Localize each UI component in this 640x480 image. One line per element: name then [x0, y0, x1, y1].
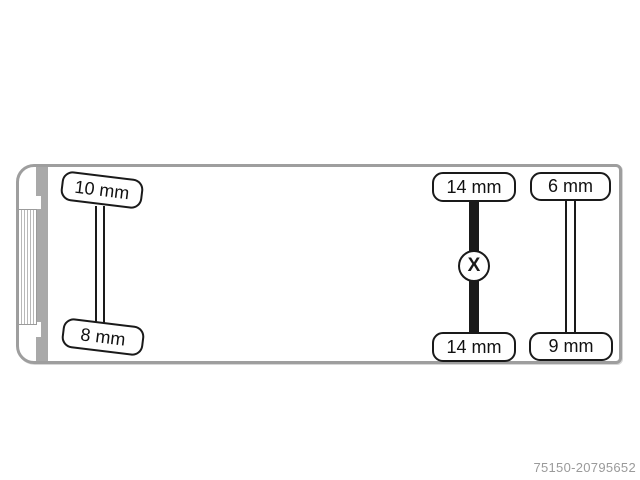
drive-axle-x-marker: X	[458, 250, 490, 282]
x-marker-label: X	[468, 255, 481, 277]
tire-drive-top: 14 mm	[432, 172, 516, 202]
front-grille	[18, 209, 37, 325]
tire-drive-bottom: 14 mm	[432, 332, 516, 362]
steer-axle-line	[95, 206, 105, 324]
rear-axle-line	[565, 200, 576, 334]
tread-depth-label: 14 mm	[446, 177, 501, 198]
tire-tread-diagram: 10 mm 8 mm X 14 mm 14 mm 6 mm 9 mm 75150…	[0, 0, 640, 480]
tread-depth-label: 9 mm	[549, 336, 594, 357]
tread-depth-label: 8 mm	[79, 324, 126, 350]
grille-notch-top	[19, 196, 41, 209]
tread-depth-label: 6 mm	[548, 176, 593, 197]
tread-depth-label: 14 mm	[446, 337, 501, 358]
tire-rear-top: 6 mm	[530, 172, 611, 201]
reference-number: 75150-20795652	[0, 460, 636, 475]
tread-depth-label: 10 mm	[73, 176, 130, 204]
tire-rear-bottom: 9 mm	[529, 332, 613, 361]
